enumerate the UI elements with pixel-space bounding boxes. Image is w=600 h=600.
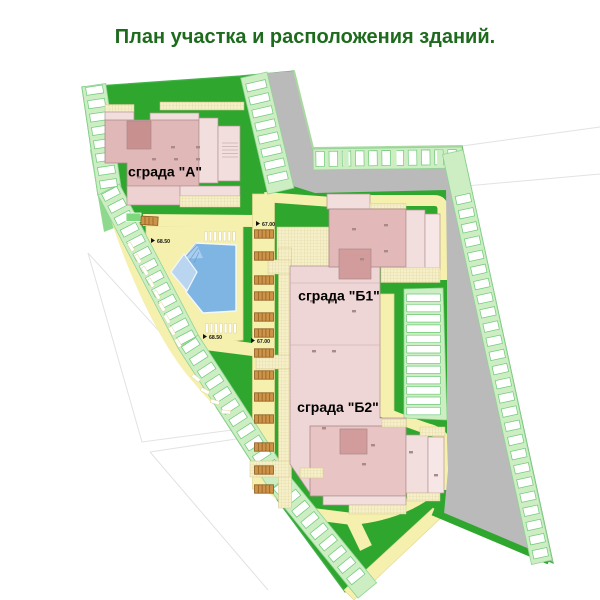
svg-text:67.00: 67.00 [257,339,270,345]
svg-text:сграда "Б1": сграда "Б1" [298,288,380,304]
svg-text:68.50: 68.50 [157,239,170,245]
svg-text:сграда "Б2": сграда "Б2" [297,399,379,415]
svg-text:67.00: 67.00 [262,222,275,228]
svg-text:сграда "А": сграда "А" [128,164,202,180]
svg-text:68.50: 68.50 [209,335,222,341]
svg-text:План участка и расположения зд: План участка и расположения зданий. [115,26,495,48]
